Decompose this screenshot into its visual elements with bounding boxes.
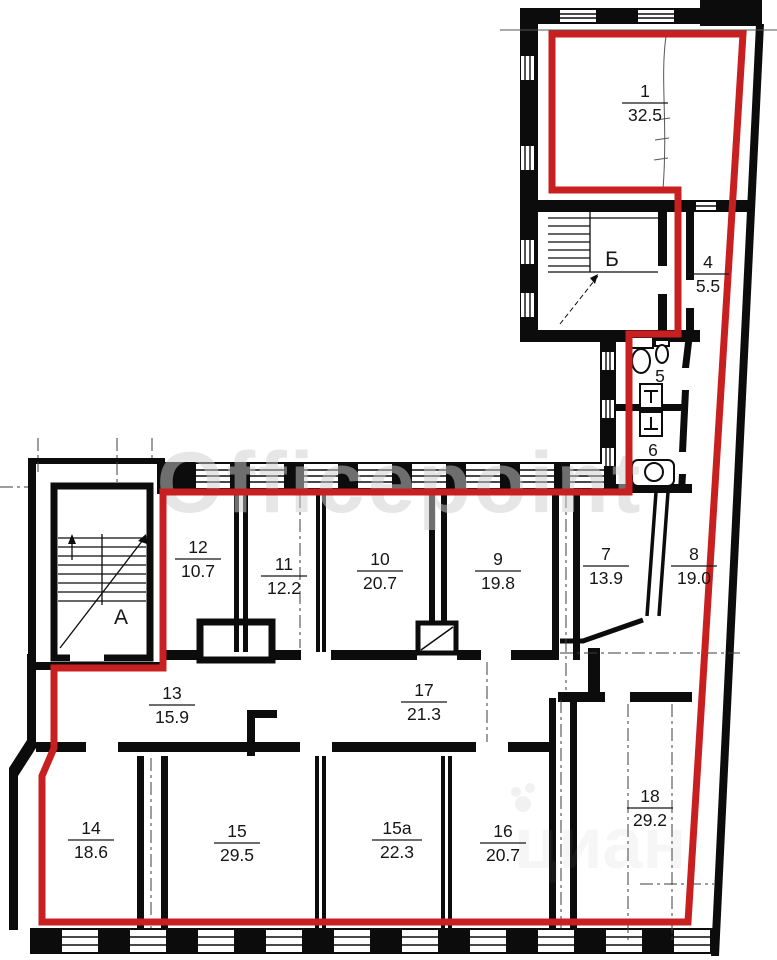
window [606, 930, 642, 952]
stairwell-a-treads [58, 534, 147, 661]
match-line [663, 36, 666, 190]
watermark-text: Officepoint [157, 435, 644, 531]
room-area: 10.7 [181, 561, 215, 581]
room-label-15a: 15a 22.3 [372, 818, 422, 862]
window [521, 56, 534, 80]
window [130, 930, 166, 952]
room-label-18: 18 29.2 [627, 786, 673, 830]
room-number: 18 [640, 786, 659, 806]
room-number: 7 [601, 544, 611, 564]
window [266, 930, 302, 952]
room-area: 5.5 [696, 276, 720, 296]
room-area: 20.7 [486, 845, 520, 865]
room-number: 8 [689, 544, 699, 564]
window [470, 930, 506, 952]
room-number: 15 [227, 821, 246, 841]
room-number: 16 [493, 821, 512, 841]
room-area: 21.3 [407, 704, 441, 724]
washbasin-icon [640, 412, 662, 436]
room-number: 15a [382, 818, 411, 838]
room-label-7: 7 13.9 [583, 544, 629, 588]
room-label-15: 15 29.5 [214, 821, 260, 865]
room-label-12: 12 10.7 [175, 537, 221, 581]
room-area: 20.7 [363, 573, 397, 593]
room-label-5: 5 [655, 366, 665, 386]
room-label-1: 1 32.5 [622, 81, 668, 125]
room-number: 10 [370, 549, 390, 569]
stairwell-a-label: А [114, 606, 128, 629]
window [674, 930, 710, 952]
room-number: 14 [81, 818, 101, 838]
window [638, 10, 674, 22]
room-area: 19.0 [677, 568, 711, 588]
window [521, 240, 534, 264]
room-area: 29.5 [220, 845, 254, 865]
room-label-6: 6 [648, 440, 658, 460]
room-area: 18.6 [74, 842, 108, 862]
room-label-13: 13 15.9 [149, 683, 195, 727]
room-label-9: 9 19.8 [475, 549, 521, 593]
room-area: 15.9 [155, 707, 189, 727]
washbasin-icon [640, 384, 662, 408]
room-number: 17 [414, 680, 433, 700]
room-number: 12 [188, 537, 207, 557]
room-number: 13 [162, 683, 181, 703]
window [402, 930, 438, 952]
window [602, 352, 614, 370]
floor-plan-page: Officepoint циан 1 32.5 4 5.5 5 6 7 13.9… [0, 0, 777, 960]
room-number: 1 [640, 81, 650, 101]
floor-plan: Officepoint циан 1 32.5 4 5.5 5 6 7 13.9… [0, 0, 777, 960]
room-area: 29.2 [633, 810, 667, 830]
room-label-14: 14 18.6 [68, 818, 114, 862]
room-label-17: 17 21.3 [401, 680, 447, 724]
window [521, 146, 534, 170]
window [521, 293, 534, 317]
window [334, 930, 370, 952]
window [62, 930, 98, 952]
stairwell-b-label: Б [605, 248, 619, 271]
stairwell-b-treads [548, 212, 658, 324]
room-area: 13.9 [589, 568, 623, 588]
window [198, 930, 234, 952]
window [560, 10, 596, 22]
room-number: 9 [493, 549, 503, 569]
room-number: 4 [703, 252, 713, 272]
room-label-10: 10 20.7 [357, 549, 403, 593]
window [538, 930, 574, 952]
room-area: 19.8 [481, 573, 515, 593]
room-area: 22.3 [380, 842, 414, 862]
sink-icon [655, 340, 669, 363]
room-area: 12.2 [267, 578, 301, 598]
room-area: 32.5 [628, 105, 662, 125]
room-number: 11 [275, 554, 293, 574]
window [602, 400, 614, 418]
